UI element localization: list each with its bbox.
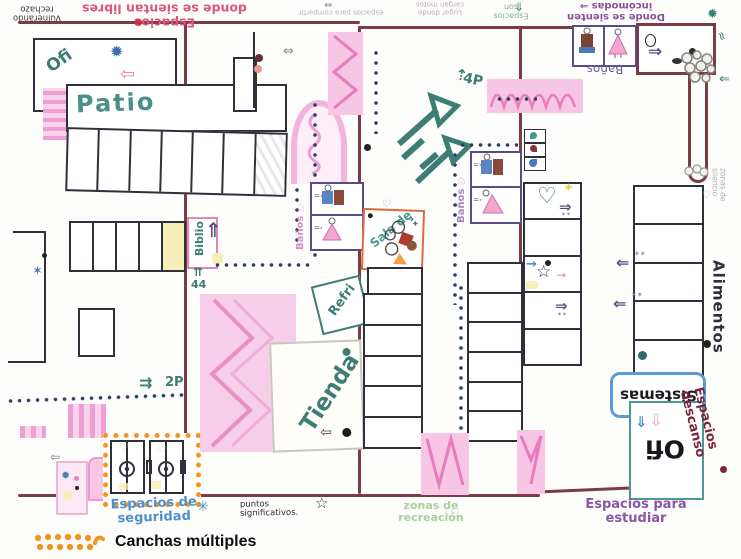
male-figure-icon: =› bbox=[472, 153, 514, 181]
heart-doodle-icon: ♡ bbox=[157, 443, 167, 456]
arrow-right-icon: ⇒ bbox=[648, 42, 662, 62]
cell bbox=[469, 383, 521, 413]
label-44: 44 bbox=[191, 278, 206, 291]
label-patio: Patio bbox=[76, 89, 156, 118]
zigzag-icon bbox=[328, 32, 363, 115]
arrow-leftright-icon: ⇔ bbox=[324, 0, 332, 11]
dotted-path bbox=[451, 150, 459, 305]
yellow-mark-icon bbox=[63, 491, 72, 500]
label-alimentos: Alimentos bbox=[710, 260, 727, 395]
cell bbox=[140, 223, 163, 270]
playroom-box: Sala de → ✦ bbox=[361, 208, 425, 272]
arrow-down-icon: ⇓ bbox=[635, 413, 648, 431]
maroon-dot-icon bbox=[255, 54, 263, 62]
heart-icon: ♡ bbox=[537, 184, 557, 209]
cell bbox=[525, 130, 545, 144]
star-outline-icon: ☆ bbox=[315, 494, 328, 512]
arrow-left-icon: ⇐ bbox=[613, 294, 626, 313]
asterisk-icon: ✳ bbox=[197, 499, 209, 515]
cell bbox=[635, 264, 702, 302]
heart-icon: ♡ bbox=[444, 505, 460, 526]
cell bbox=[525, 220, 580, 256]
pink-dot-icon bbox=[74, 476, 79, 481]
cell bbox=[469, 323, 521, 353]
drop-icon bbox=[529, 159, 537, 167]
cell bbox=[161, 132, 194, 193]
stones-icon bbox=[679, 50, 719, 86]
arrow-up-icon: ⇑ bbox=[205, 218, 222, 242]
pink-figure-box: ✹ bbox=[56, 461, 88, 515]
male-figure-icon bbox=[574, 27, 600, 59]
cell: ⇒ ✶✶ bbox=[525, 293, 580, 329]
arrow-left-icon: ⇐ bbox=[719, 72, 730, 87]
dot-icon bbox=[342, 428, 351, 437]
sparkle-pair-icon: ✶✶ bbox=[634, 250, 646, 258]
cell bbox=[365, 295, 421, 326]
pink-block bbox=[421, 433, 469, 495]
arrow-left-icon: ⇐ bbox=[616, 253, 629, 272]
splat-icon: ✹ bbox=[110, 42, 123, 61]
cell bbox=[635, 225, 702, 263]
decorated-stack: ♡ ✦ ⇒ ✶✶ → ☆ → ⇒ ✶✶ bbox=[523, 182, 582, 366]
label-vulnerando: Vulnerando rechazo bbox=[8, 3, 66, 22]
hand-drawn-school-map: ⇒ Vulnerando rechazo Espacios donde se s… bbox=[0, 0, 741, 559]
wall bbox=[8, 361, 46, 363]
cell bbox=[365, 357, 421, 388]
drop-icon bbox=[530, 145, 537, 152]
drops-box bbox=[524, 129, 546, 171]
sparkle-pair-icon: ✶✶ bbox=[631, 291, 643, 299]
arrow-up-pair-icon: ⇈ bbox=[193, 265, 203, 279]
label-espacios-verde: Espacios son bbox=[488, 2, 534, 20]
legend-label: Canchas múltiples bbox=[115, 533, 256, 551]
room-stack bbox=[363, 293, 423, 449]
label-banos-top: Baños bbox=[575, 62, 635, 75]
store-box: Tienda ⇦ bbox=[269, 339, 365, 452]
cell: → ☆ → bbox=[525, 257, 580, 293]
dotted-path bbox=[372, 48, 380, 134]
cell bbox=[469, 294, 521, 324]
svg-text:=›: =› bbox=[473, 161, 482, 169]
cell bbox=[365, 418, 421, 447]
zigzag-icon bbox=[517, 430, 545, 494]
restroom-box-female bbox=[603, 25, 637, 67]
label-ofi: Ofi bbox=[639, 435, 691, 463]
cell bbox=[525, 330, 580, 364]
svg-text:=›: =› bbox=[473, 196, 482, 204]
maroon-dot-icon bbox=[720, 466, 727, 473]
label-banos-1: Baños ♡ bbox=[295, 184, 306, 250]
svg-text:=›: =› bbox=[314, 192, 323, 200]
dot-icon bbox=[75, 486, 79, 490]
room-stack-right bbox=[633, 185, 704, 379]
label-donde-incomodas: Donde se sienten incómodas ⇒ bbox=[550, 0, 682, 22]
svg-text:=›: =› bbox=[314, 224, 323, 232]
dotted-path bbox=[458, 141, 518, 149]
kids-doodle-icon bbox=[383, 219, 421, 266]
legend: Canchas múltiples bbox=[33, 528, 433, 556]
female-figure-icon: =› bbox=[472, 188, 514, 216]
pink-block bbox=[517, 430, 545, 494]
courts-icon: ♡ ♡ bbox=[109, 439, 187, 495]
cell bbox=[99, 130, 132, 191]
label-espacios-seguridad: Espacios de seguridad bbox=[100, 495, 209, 527]
pink-block bbox=[20, 426, 46, 438]
squiggle-icon: ≈ bbox=[714, 28, 731, 43]
splat-icon: ✹ bbox=[61, 469, 70, 482]
cell bbox=[67, 129, 100, 190]
pink-block bbox=[68, 404, 106, 438]
female-figure-icon bbox=[605, 27, 631, 59]
cell bbox=[192, 132, 225, 193]
star-outline-icon: ☆ bbox=[536, 262, 551, 282]
teal-dot-icon bbox=[638, 351, 647, 360]
cell bbox=[94, 223, 117, 270]
pink-block bbox=[328, 32, 363, 115]
arrow-left-outline-icon: ⇦ bbox=[320, 425, 332, 441]
cell: ♡ ✦ ⇒ ✶✶ bbox=[525, 184, 580, 220]
cell bbox=[224, 133, 257, 194]
arrow-left-outline-icon: ⇦ bbox=[120, 64, 135, 85]
cell bbox=[635, 187, 702, 225]
sparkle-icon: ✶ bbox=[32, 264, 43, 279]
star-icon: ✦ bbox=[563, 181, 574, 196]
room-stack bbox=[467, 262, 523, 442]
label-espacios-libres: Espacios donde se sientan libres bbox=[72, 2, 257, 30]
male-figure-icon: =› bbox=[312, 184, 356, 209]
cell bbox=[255, 134, 286, 195]
road-end-stones-icon bbox=[683, 163, 709, 179]
double-arrow-right-icon: ⇉ bbox=[139, 373, 152, 392]
sparkle-pair-icon: ✶✶ bbox=[561, 211, 571, 218]
restroom-box-female: =› bbox=[470, 186, 522, 224]
heart-icon: ♡ bbox=[702, 190, 711, 201]
dot-icon bbox=[42, 253, 47, 258]
restroom-box-female: =› bbox=[310, 214, 364, 251]
cell bbox=[365, 387, 421, 418]
cell bbox=[117, 223, 140, 270]
label-2p: 2P bbox=[165, 375, 184, 390]
cell bbox=[365, 326, 421, 357]
big-arrows-icon bbox=[393, 82, 481, 187]
dotted-path bbox=[495, 95, 537, 103]
restroom-box-male: =› bbox=[470, 151, 522, 189]
label-ofi-topleft: Ofi bbox=[43, 46, 76, 77]
dot-icon bbox=[368, 213, 373, 218]
red-dot-icon bbox=[135, 19, 142, 26]
sparkle-pair-icon: ✶✶ bbox=[557, 311, 567, 318]
restroom-box-male: =› bbox=[310, 182, 364, 217]
cell bbox=[635, 302, 702, 340]
arrow-leftright-icon: ⇔ bbox=[283, 44, 294, 59]
classroom-row bbox=[69, 221, 186, 272]
sparkle-icon: ✹ bbox=[707, 7, 718, 22]
label-espacios-estudiar: Espacios para estudiar bbox=[577, 498, 695, 527]
cell bbox=[469, 264, 521, 294]
pink-block bbox=[43, 88, 67, 140]
cell bbox=[469, 412, 521, 440]
heart-doodle-icon: ♡ bbox=[119, 441, 129, 454]
classroom-row bbox=[65, 127, 288, 197]
salmon-dot-icon bbox=[254, 65, 262, 73]
cell bbox=[525, 158, 545, 170]
small-room bbox=[78, 308, 115, 357]
yellow-mark-icon bbox=[526, 281, 538, 289]
cell bbox=[469, 353, 521, 383]
label-refri: Refri bbox=[326, 282, 358, 319]
dotted-path bbox=[457, 283, 465, 433]
cell bbox=[71, 223, 94, 270]
wall bbox=[13, 231, 46, 233]
arrow-right-icon: → bbox=[556, 268, 566, 282]
arrow-down-outline-icon: ⇩ bbox=[649, 411, 663, 431]
label-faint-compartir: espacios para compartir bbox=[288, 8, 394, 16]
arrow-down-icon: ⇓ bbox=[514, 0, 524, 14]
female-figure-icon: =› bbox=[312, 216, 356, 243]
cell bbox=[525, 144, 545, 158]
restroom-box-male bbox=[572, 25, 606, 67]
dotted-path bbox=[213, 261, 313, 269]
zigzag-icon bbox=[421, 433, 469, 495]
cell bbox=[163, 223, 184, 270]
dot-icon bbox=[364, 144, 371, 151]
orange-dots-icon bbox=[33, 531, 105, 553]
label-faint-motos: Lugar donde cargan motos bbox=[405, 0, 475, 15]
drop-icon bbox=[530, 132, 537, 139]
cell bbox=[130, 131, 163, 192]
label-zonas-silencio: zonas de silencio bbox=[710, 168, 727, 230]
